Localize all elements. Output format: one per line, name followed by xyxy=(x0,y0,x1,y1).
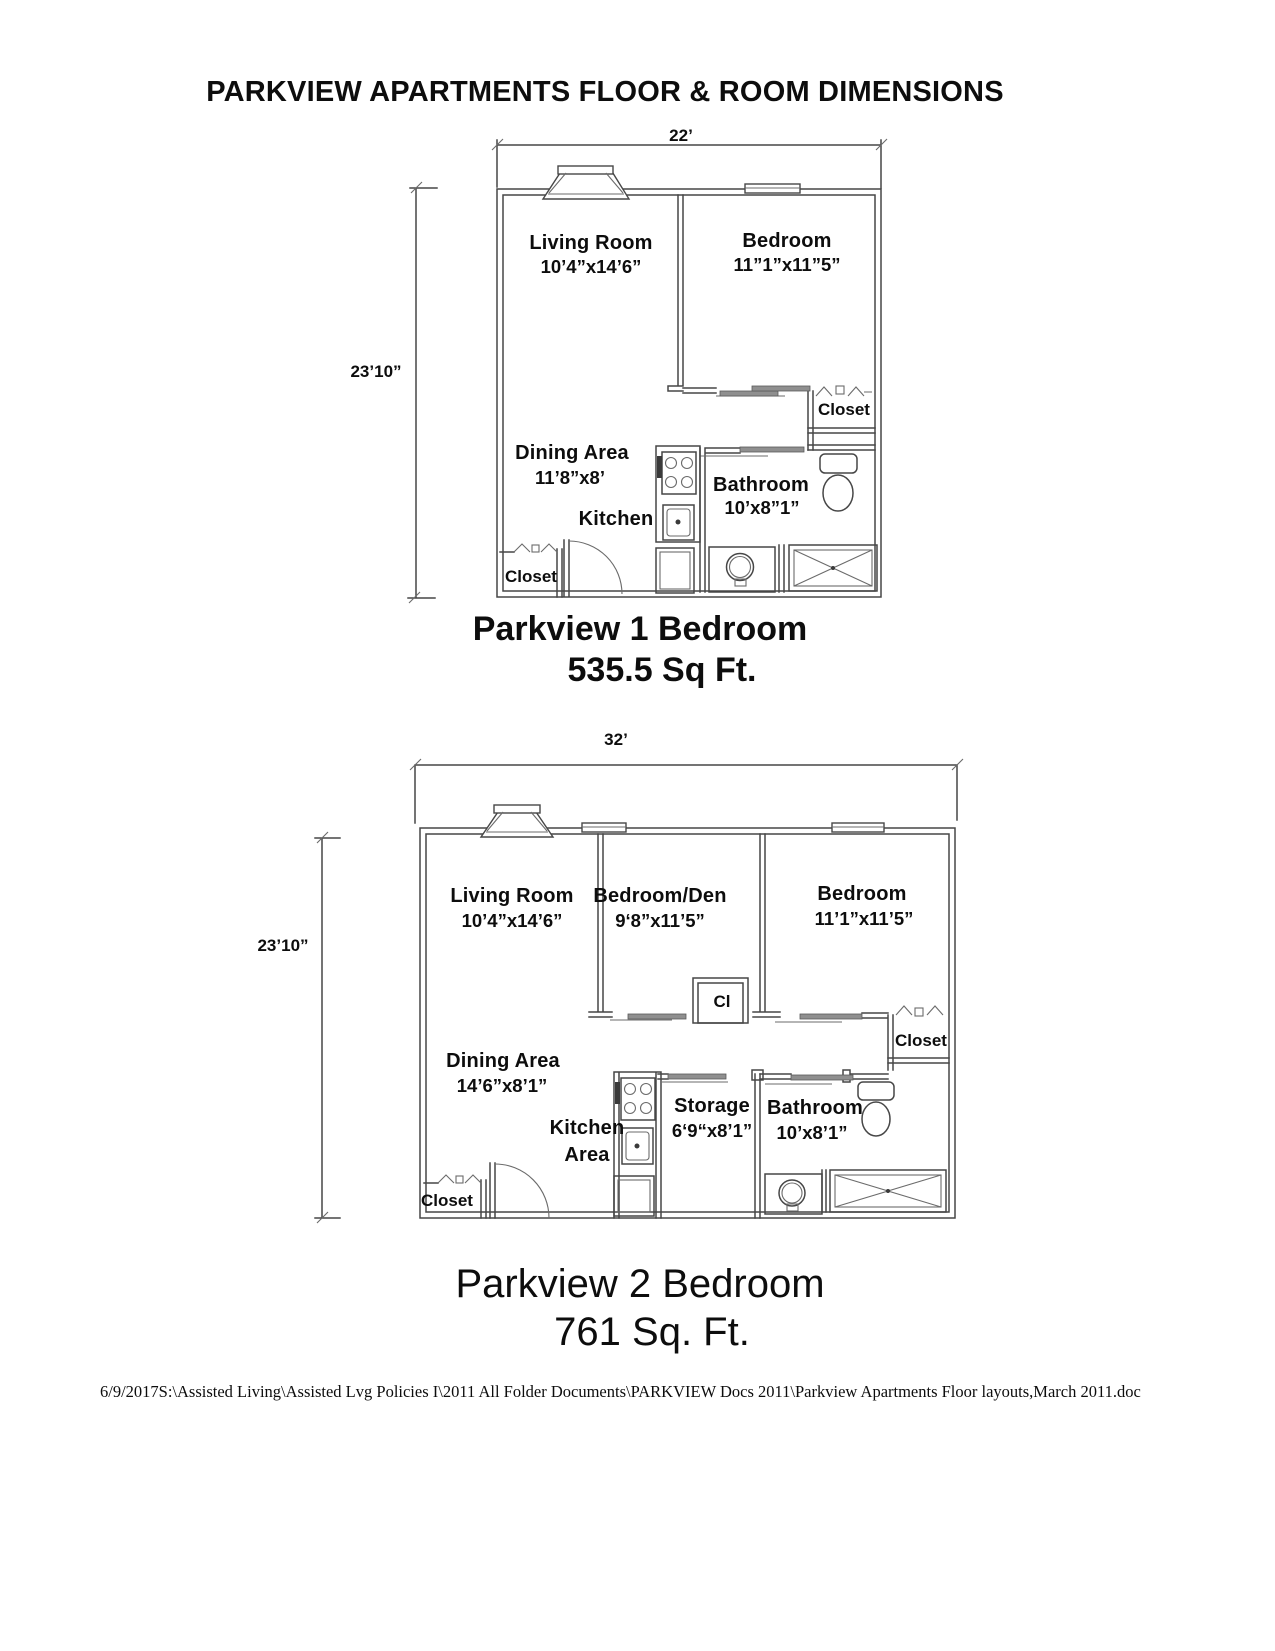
plan1-dining-area-dims: 11’8”x8’ xyxy=(535,469,605,488)
plan1-living-room-label: Living Room xyxy=(529,233,652,253)
plan2-height-dimension: 23’10” xyxy=(257,937,308,954)
plan2-caption-area: 761 Sq. Ft. xyxy=(554,1312,750,1352)
plan1-dining-area-label: Dining Area xyxy=(515,443,629,463)
plan2-entry-closet-label: Closet xyxy=(421,1192,473,1209)
plan2-living-room-label: Living Room xyxy=(450,886,573,906)
document-page: PARKVIEW APARTMENTS FLOOR & ROOM DIMENSI… xyxy=(0,0,1275,1651)
page-title: PARKVIEW APARTMENTS FLOOR & ROOM DIMENSI… xyxy=(206,78,1004,107)
plan1-drawing xyxy=(408,139,887,603)
plan1-caption-area: 535.5 Sq Ft. xyxy=(568,653,757,687)
plan1-bathroom-label: Bathroom xyxy=(713,475,809,495)
plan2-storage-dims: 6‘9“x8’1” xyxy=(672,1122,752,1141)
plan1-windows xyxy=(543,166,800,199)
plan1-height-dimension: 23’10” xyxy=(350,363,401,380)
plan1-kitchen-label: Kitchen xyxy=(579,509,654,529)
file-path-footer: 6/9/2017S:\Assisted Living\Assisted Lvg … xyxy=(100,1384,1141,1401)
plan2-living-room-dims: 10’4”x14’6” xyxy=(462,912,563,931)
plan1-living-room-dims: 10’4”x14’6” xyxy=(541,258,642,277)
plan2-bedroom-den-dims: 9‘8”x11’5” xyxy=(615,912,705,931)
plan2-windows xyxy=(481,805,884,837)
plan2-bedroom-dims: 11’1”x11’5” xyxy=(815,910,914,929)
plan2-kitchen-label-line1: Kitchen xyxy=(550,1118,625,1138)
plan2-caption-title: Parkview 2 Bedroom xyxy=(455,1264,824,1304)
plan2-small-closet-label: Cl xyxy=(714,993,731,1010)
plan2-storage-label: Storage xyxy=(674,1096,750,1116)
plan1-width-dimension: 22’ xyxy=(669,127,693,144)
plan2-dining-area-dims: 14’6”x8’1” xyxy=(457,1077,548,1096)
plan1-bedroom-label: Bedroom xyxy=(742,231,831,251)
plan1-caption-title: Parkview 1 Bedroom xyxy=(473,612,807,646)
plan1-kitchen-fixtures xyxy=(656,446,700,593)
plan2-dining-area-label: Dining Area xyxy=(446,1051,560,1071)
plan1-entry-closet-label: Closet xyxy=(505,568,557,585)
plan2-drawing xyxy=(315,759,963,1223)
plan2-bedroom-label: Bedroom xyxy=(817,884,906,904)
plan2-width-dimension: 32’ xyxy=(604,731,628,748)
plan2-kitchen-label-line2: Area xyxy=(564,1145,609,1165)
plan1-closets xyxy=(500,386,872,597)
plan2-bedroom-closet-label: Closet xyxy=(895,1032,947,1049)
plan2-kitchen-fixtures xyxy=(614,1078,655,1216)
plan1-dimension-lines xyxy=(408,139,887,603)
plan2-bedroom-den-label: Bedroom/Den xyxy=(593,886,726,906)
plan2-bathroom-label: Bathroom xyxy=(767,1098,863,1118)
plan1-bedroom-dims: 11”1”x11”5” xyxy=(734,256,841,275)
plan1-bedroom-closet-label: Closet xyxy=(818,401,870,418)
plan2-bathroom-dims: 10’x8’1” xyxy=(777,1124,848,1143)
plan1-bathroom-dims: 10’x8”1” xyxy=(724,499,799,518)
